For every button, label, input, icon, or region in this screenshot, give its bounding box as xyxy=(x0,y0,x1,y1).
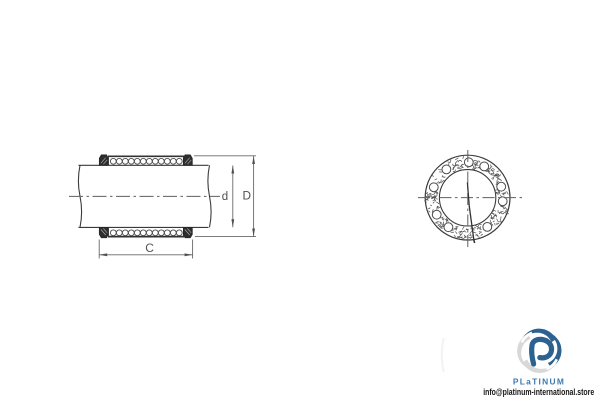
svg-text:PLaTINUM: PLaTINUM xyxy=(513,377,565,387)
svg-text:C: C xyxy=(145,241,154,255)
svg-text:D: D xyxy=(243,189,252,203)
svg-text:d: d xyxy=(222,191,228,203)
svg-text:info@platinum-international.st: info@platinum-international.store xyxy=(483,387,594,397)
